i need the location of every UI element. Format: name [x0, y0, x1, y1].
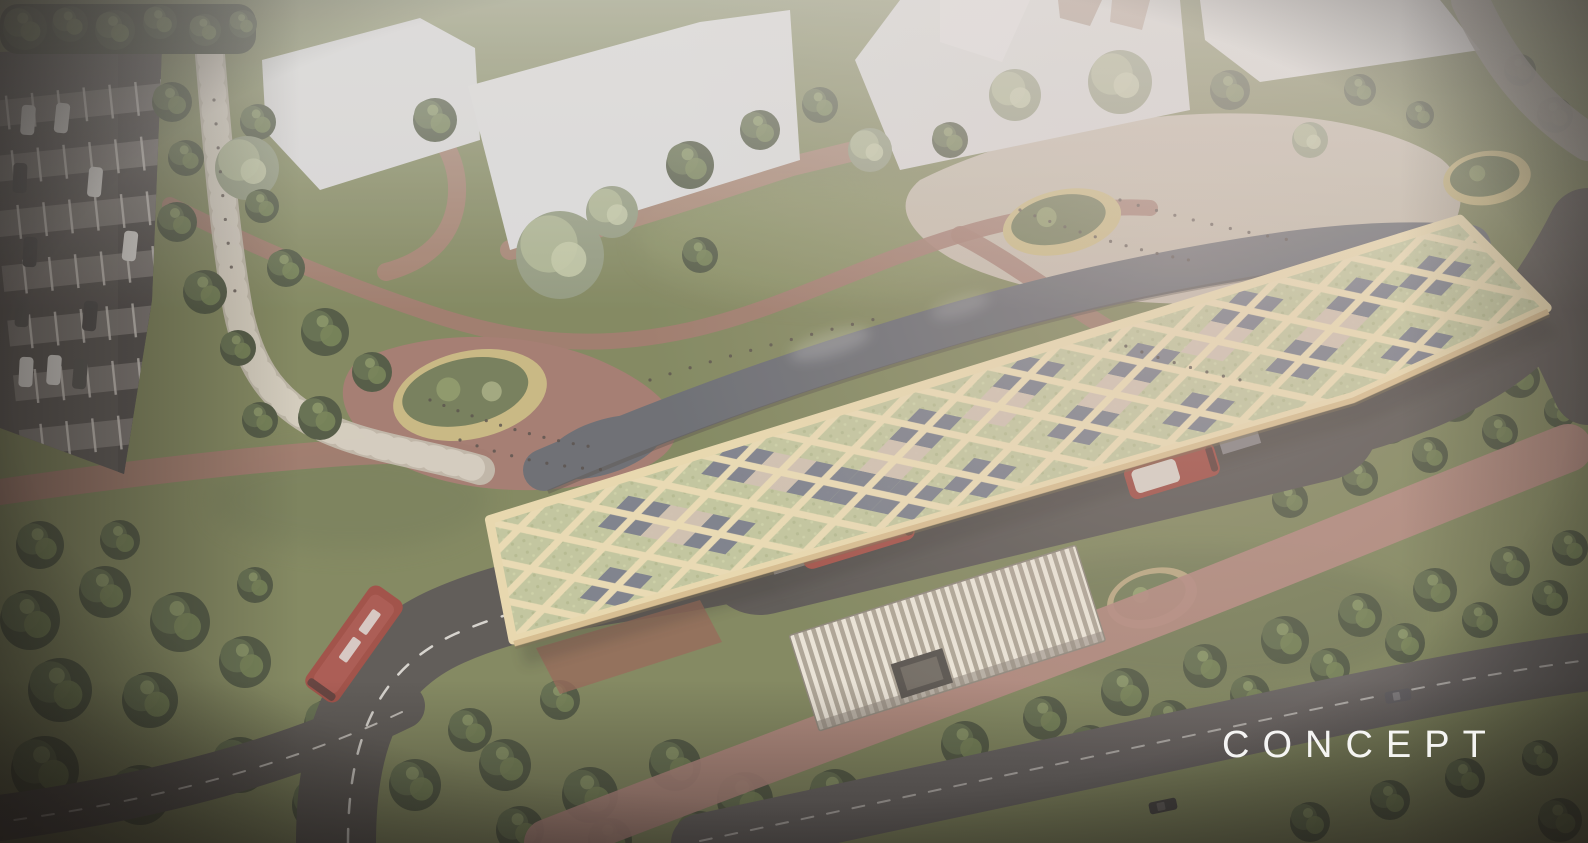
- haze-vignette: [0, 0, 1588, 843]
- aerial-scene: [0, 0, 1588, 843]
- concept-watermark: CONCEPT: [1222, 724, 1499, 767]
- concept-render-image: CONCEPT: [0, 0, 1588, 843]
